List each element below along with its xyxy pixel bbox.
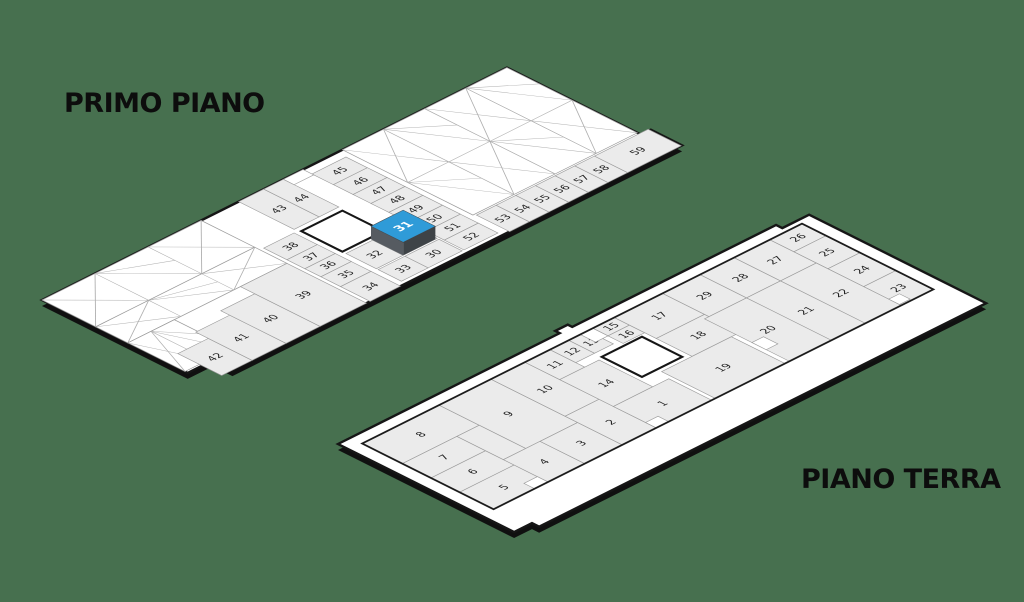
floorplan-stage: 4241403938373635344344454647484950515232… (0, 0, 1024, 598)
title-piano-terra: PIANO TERRA (801, 464, 1001, 495)
title-primo-piano: PRIMO PIANO (64, 88, 265, 119)
